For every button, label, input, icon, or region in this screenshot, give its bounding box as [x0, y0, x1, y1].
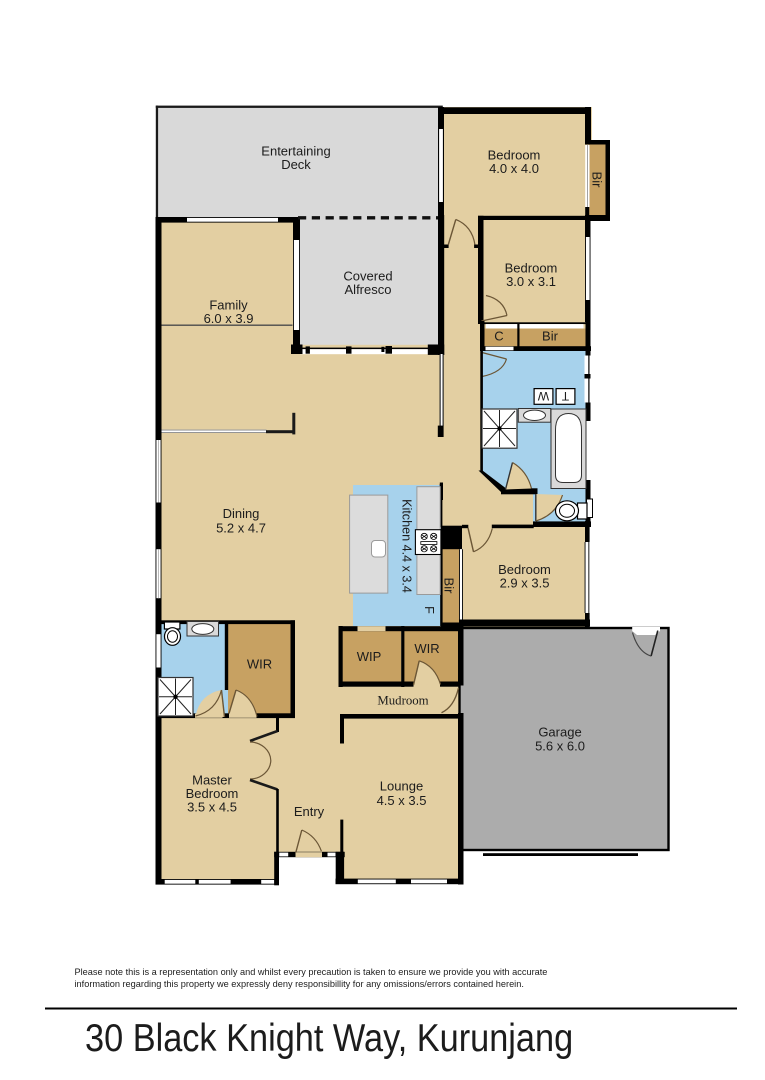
svg-text:Please note this is a represen: Please note this is a representation onl… [75, 967, 548, 977]
svg-text:WIP: WIP [357, 649, 382, 664]
svg-text:Bir: Bir [542, 329, 559, 344]
svg-text:T: T [561, 389, 569, 403]
svg-text:WIR: WIR [247, 657, 272, 672]
svg-text:Mudroom: Mudroom [377, 694, 428, 708]
svg-text:Lounge: Lounge [380, 779, 423, 794]
svg-text:Bir: Bir [442, 578, 457, 595]
svg-text:Bir: Bir [589, 172, 604, 189]
svg-text:WIR: WIR [414, 641, 439, 656]
svg-text:information regarding this pro: information regarding this property we e… [75, 979, 524, 989]
svg-text:3.5 x 4.5: 3.5 x 4.5 [187, 800, 237, 815]
svg-text:Dining: Dining [223, 506, 260, 521]
svg-text:Kitchen 4.4 x 3.4: Kitchen 4.4 x 3.4 [400, 499, 414, 593]
svg-text:Alfresco: Alfresco [345, 282, 392, 297]
svg-text:Deck: Deck [281, 157, 311, 172]
svg-text:5.6 x 6.0: 5.6 x 6.0 [535, 739, 585, 754]
svg-text:6.0 x 3.9: 6.0 x 3.9 [204, 311, 254, 326]
svg-text:4.5 x 3.5: 4.5 x 3.5 [377, 793, 427, 808]
svg-text:Garage: Garage [538, 725, 581, 740]
svg-text:5.2 x 4.7: 5.2 x 4.7 [216, 521, 266, 536]
svg-text:W: W [537, 389, 549, 403]
svg-text:C: C [494, 329, 503, 344]
svg-text:Entry: Entry [294, 804, 325, 819]
svg-text:3.0 x 3.1: 3.0 x 3.1 [506, 274, 556, 289]
svg-text:F: F [422, 606, 437, 614]
svg-text:4.0 x 4.0: 4.0 x 4.0 [489, 161, 539, 176]
svg-text:2.9 x 3.5: 2.9 x 3.5 [500, 576, 550, 591]
svg-text:30 Black Knight Way, Kurunjang: 30 Black Knight Way, Kurunjang [85, 1016, 573, 1060]
